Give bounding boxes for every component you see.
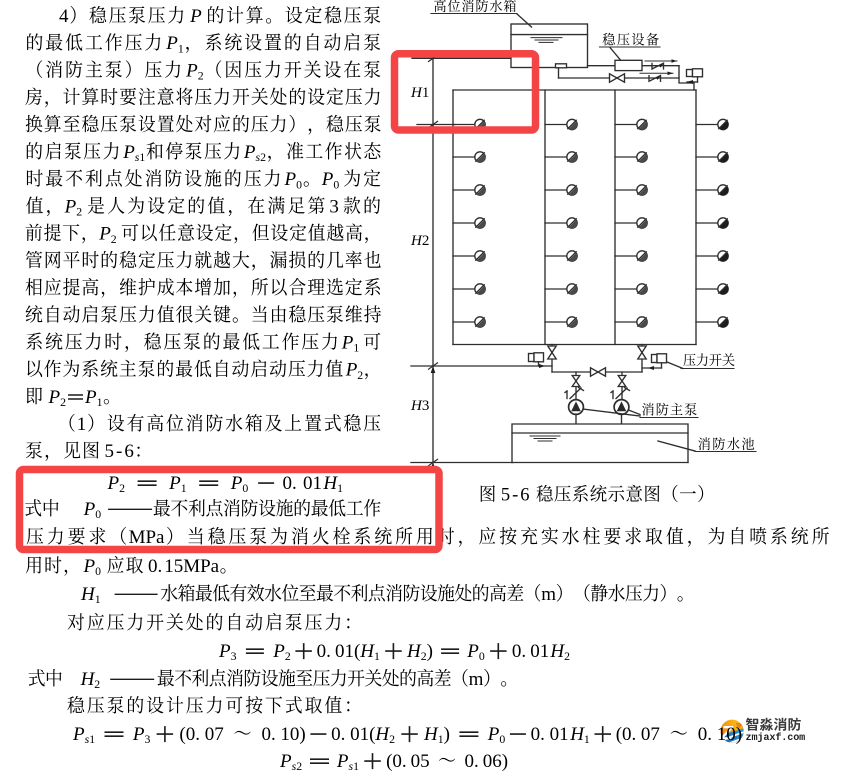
svg-text:5-6: 5-6 [501, 486, 532, 506]
svg-text:2: 2 [198, 69, 204, 83]
svg-text:07: 07 [205, 724, 224, 745]
svg-text:P: P [165, 33, 178, 54]
svg-text:2: 2 [119, 481, 125, 495]
svg-text:0.: 0. [531, 724, 545, 745]
svg-text:2: 2 [111, 232, 117, 246]
svg-text:H: H [80, 584, 96, 605]
svg-text:H: H [80, 669, 96, 690]
svg-text:0: 0 [95, 507, 101, 521]
svg-text:2: 2 [296, 759, 302, 772]
svg-text:5-6: 5-6 [105, 441, 136, 462]
svg-text:0.: 0. [698, 724, 712, 745]
svg-text:2: 2 [357, 368, 363, 382]
svg-text:1: 1 [77, 414, 87, 435]
svg-text:H: H [423, 724, 439, 745]
svg-text:P: P [284, 169, 297, 190]
svg-text:0.: 0. [512, 641, 526, 662]
svg-text:1: 1 [95, 592, 101, 606]
svg-text:(0.: (0. [179, 724, 200, 745]
svg-text:1: 1 [584, 732, 590, 746]
svg-text:2: 2 [76, 205, 82, 219]
svg-text:P: P [466, 641, 479, 662]
svg-text:m: m [541, 584, 556, 605]
svg-text:01: 01 [303, 473, 322, 494]
svg-text:05: 05 [411, 751, 430, 772]
svg-text:2: 2 [94, 677, 100, 691]
svg-text:P: P [132, 724, 145, 745]
svg-text:0: 0 [499, 732, 505, 746]
svg-text:0.: 0. [262, 724, 276, 745]
svg-text:1: 1 [353, 759, 359, 772]
svg-text:P: P [72, 724, 85, 745]
svg-text:1: 1 [374, 649, 380, 663]
svg-text:2: 2 [564, 649, 570, 663]
svg-text:3: 3 [231, 649, 237, 663]
svg-text:01: 01 [550, 724, 569, 745]
svg-text:1: 1 [89, 732, 95, 746]
svg-text:P: P [336, 751, 349, 772]
svg-text:06): 06) [483, 751, 508, 772]
svg-text:0: 0 [242, 481, 248, 495]
svg-text:10): 10) [717, 724, 742, 745]
svg-text:P: P [189, 6, 202, 27]
svg-text:): ) [444, 724, 450, 745]
svg-text:H2: H2 [410, 233, 429, 249]
svg-text:07: 07 [641, 724, 660, 745]
svg-text:P: P [185, 60, 198, 81]
svg-text:0.: 0. [465, 751, 479, 772]
svg-text:2: 2 [389, 732, 395, 746]
svg-text:MPa: MPa [129, 527, 165, 548]
svg-text:P: P [84, 387, 97, 408]
svg-text:): ) [427, 641, 433, 662]
svg-text:P: P [107, 473, 120, 494]
svg-text:3: 3 [329, 196, 339, 217]
svg-text:01: 01 [335, 641, 354, 662]
svg-text:m: m [469, 669, 484, 690]
svg-text:P: P [487, 724, 500, 745]
svg-text:1: 1 [337, 481, 343, 495]
svg-text:4: 4 [59, 6, 69, 27]
svg-text:1: 1 [139, 150, 145, 164]
svg-text:P: P [230, 473, 243, 494]
svg-text:P: P [321, 169, 334, 190]
svg-text:0.: 0. [283, 473, 297, 494]
svg-text:H1: H1 [410, 85, 429, 101]
svg-text:P: P [83, 499, 96, 520]
svg-text:P: P [272, 641, 285, 662]
svg-text:2: 2 [60, 395, 66, 409]
svg-text:(0.: (0. [616, 724, 637, 745]
svg-text:P: P [279, 751, 292, 772]
svg-text:0: 0 [95, 564, 101, 578]
svg-text:0: 0 [479, 649, 485, 663]
svg-text:P: P [122, 142, 135, 163]
svg-text:0: 0 [296, 177, 302, 191]
svg-text:01: 01 [530, 641, 549, 662]
svg-text:10): 10) [280, 724, 305, 745]
svg-text:P: P [64, 196, 77, 217]
svg-text:2: 2 [285, 649, 291, 663]
svg-text:P: P [341, 332, 354, 353]
svg-text:1: 1 [178, 41, 184, 55]
svg-text:0.: 0. [331, 724, 345, 745]
svg-text:H: H [549, 641, 565, 662]
svg-text:1: 1 [181, 481, 187, 495]
svg-text:H: H [569, 724, 585, 745]
svg-text:15MPa: 15MPa [164, 556, 219, 577]
svg-text:P: P [168, 473, 181, 494]
svg-text:H: H [322, 473, 338, 494]
svg-text:2: 2 [260, 150, 266, 164]
svg-text:H: H [359, 641, 375, 662]
svg-text:P: P [345, 360, 358, 381]
svg-text:H3: H3 [410, 398, 429, 414]
svg-text:3: 3 [145, 732, 151, 746]
svg-text:1: 1 [353, 341, 359, 355]
svg-text:P: P [243, 142, 256, 163]
svg-text:P: P [83, 556, 96, 577]
svg-text:P: P [218, 641, 231, 662]
svg-text:1: 1 [97, 395, 103, 409]
svg-text:0.: 0. [317, 641, 331, 662]
svg-text:0: 0 [333, 177, 339, 191]
svg-text:0.: 0. [148, 556, 162, 577]
svg-text:H: H [406, 641, 422, 662]
svg-text:zmjaxf.com: zmjaxf.com [746, 732, 806, 744]
svg-text:P: P [48, 387, 61, 408]
svg-text:P: P [98, 224, 111, 245]
svg-text:(0.: (0. [386, 751, 407, 772]
svg-text:H: H [374, 724, 390, 745]
svg-text:01(: 01( [350, 724, 375, 745]
